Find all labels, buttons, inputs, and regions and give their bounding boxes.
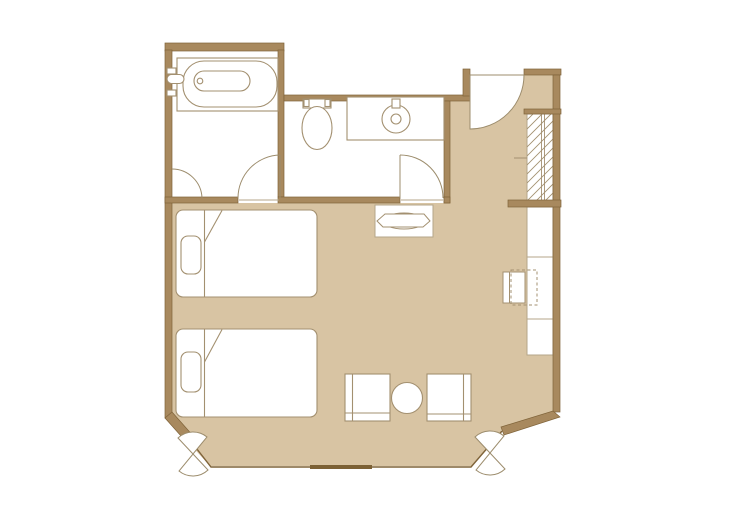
lounge-chair-left [345, 374, 390, 421]
toilet-tank-button-right [325, 100, 330, 107]
bath-faucet-tab-top [167, 68, 176, 74]
wall-bath-wash-divider [278, 50, 284, 197]
closet-interior [527, 114, 553, 203]
wall-washroom-right [444, 101, 450, 203]
bath-faucet-spout [167, 75, 184, 84]
wall-bottom-segment-b [278, 197, 400, 203]
pillow-2 [181, 352, 201, 392]
floor-plan-page [0, 0, 729, 516]
toilet-bowl [302, 107, 332, 150]
luggage-bench-top [377, 214, 430, 227]
wall-left [165, 50, 172, 418]
wall-bathroom-top [165, 43, 284, 51]
floor-plan-drawing [0, 0, 729, 516]
round-table [392, 383, 423, 414]
desk-counter [527, 207, 553, 355]
wall-closet-bottom [508, 200, 561, 207]
bathtub-drain [197, 78, 203, 84]
pillow-1 [181, 236, 201, 274]
wall-right [553, 75, 560, 412]
sink-drain [391, 114, 401, 124]
bath-faucet-tab-bottom [167, 90, 176, 96]
wall-bottom-segment-c [444, 197, 450, 203]
luggage-bench [377, 213, 430, 229]
wall-entry-step [463, 69, 470, 96]
desk-chair [503, 272, 525, 303]
toilet-tank-button-left [304, 100, 309, 107]
wall-closet-top [524, 109, 561, 114]
bathroom-fixtures [167, 58, 278, 111]
wall-entry-top [524, 69, 561, 75]
sink-faucet [392, 99, 400, 108]
